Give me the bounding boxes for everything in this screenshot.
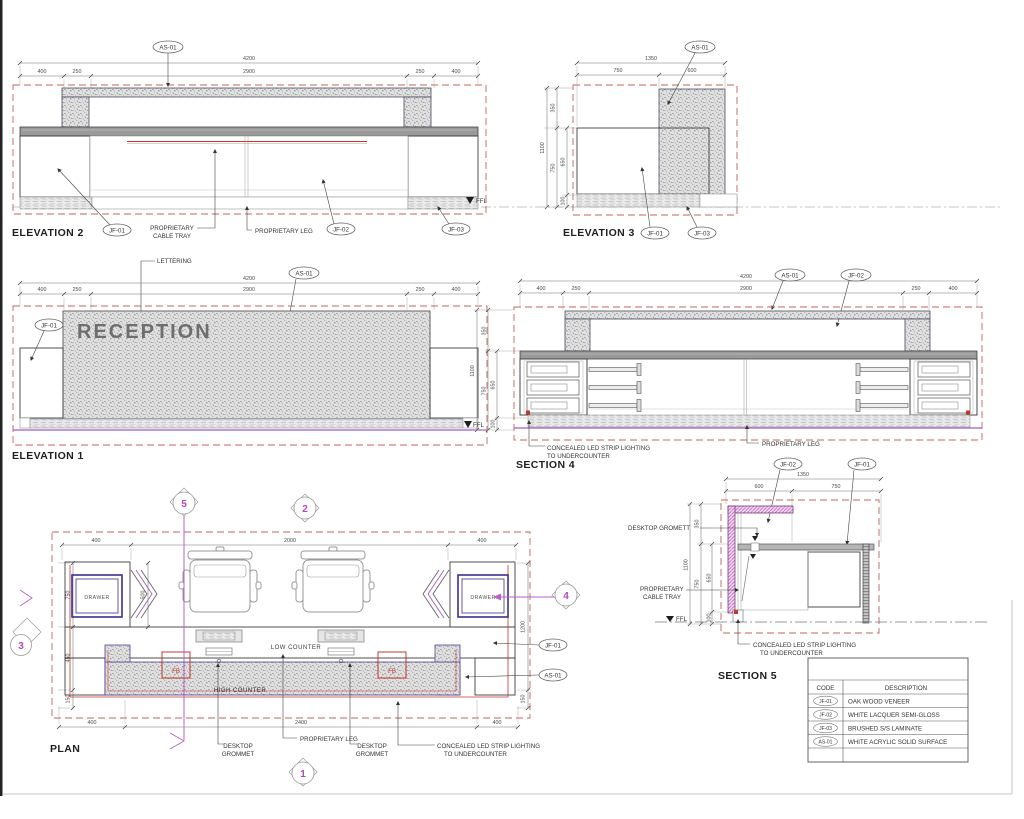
dim-label: 750 (482, 387, 488, 396)
svg-text:CABLE TRAY: CABLE TRAY (643, 594, 681, 601)
callout-jf01: JF-01 (31, 319, 63, 360)
note-led-strip: CONCEALED LED STRIP LIGHTING TO UNDERCOU… (398, 702, 540, 758)
dim-label: 2900 (243, 69, 255, 75)
svg-text:JF-01: JF-01 (545, 643, 561, 650)
material-desc: WHITE LACQUER SEMI-GLOSS (848, 712, 940, 719)
dim-label: 4200 (243, 276, 255, 282)
section-marker-4: 4 (493, 581, 580, 609)
svg-text:CONCEALED LED STRIP LIGHTING: CONCEALED LED STRIP LIGHTING (753, 642, 856, 649)
material-code: AS-01 (819, 740, 833, 746)
section-marker-5: 5 (170, 488, 198, 749)
high-counter-band (105, 662, 460, 695)
section5-dashed-extent (721, 500, 879, 633)
lacquer-panel (90, 136, 408, 197)
plan-view: 400 2000 400 400 2400 400 750 450 150 50… (11, 488, 581, 786)
reception-signage: RECEPTION (77, 321, 212, 343)
section-marker-2: 2 (291, 494, 319, 522)
note-proprietary-leg: PROPRIETARY LEG (747, 426, 820, 448)
svg-text:DESKTOP GROMETT: DESKTOP GROMETT (628, 525, 690, 532)
cable-tray-profile (742, 556, 749, 601)
dim-label: 150 (521, 695, 527, 704)
material-code: JF-03 (819, 726, 832, 732)
countertop (520, 351, 977, 359)
dim-label: 750 (551, 164, 557, 173)
dim-label: 1100 (684, 559, 690, 571)
fb-label: FB (388, 669, 396, 675)
dim-label: 250 (73, 287, 82, 293)
svg-text:AS-01: AS-01 (691, 45, 709, 52)
note-proprietary-leg: PROPRIETARY LEG (247, 207, 313, 235)
note-cable-tray: PROPRIETARY CABLE TRAY (640, 586, 738, 601)
dim-label: 4200 (740, 274, 752, 280)
svg-text:AS-01: AS-01 (544, 673, 562, 680)
led-strip-dot-right (966, 411, 970, 415)
led-strip-dot (734, 610, 738, 614)
dim-label: 650 (491, 381, 497, 390)
dim-label: 100 (561, 197, 567, 206)
wood-panel-left (20, 348, 63, 418)
drawing-sheet: 4200 400 250 2900 250 400 FFL AS-01 (0, 0, 1024, 819)
dim-label: 400 (949, 286, 958, 292)
material-desc: OAK WOOD VENEER (848, 699, 910, 706)
dim-label: 600 (755, 484, 764, 490)
marker-number: 5 (181, 499, 187, 510)
svg-text:JF-02: JF-02 (848, 273, 864, 280)
drawer-label: DRAWER (84, 595, 109, 601)
dim-label: 1200 (521, 621, 527, 633)
material-desc: BRUSHED S/S LAMINATE (848, 726, 922, 733)
callout-as01: AS-01 (153, 41, 183, 86)
marker-number: 1 (300, 769, 306, 780)
svg-text:JF-01: JF-01 (41, 323, 57, 330)
dim-label: 750 (66, 591, 72, 600)
svg-text:JF-03: JF-03 (694, 231, 710, 238)
material-code: JF-01 (819, 699, 832, 705)
drawing-canvas: 4200 400 250 2900 250 400 FFL AS-01 (0, 0, 1024, 819)
svg-text:TO UNDERCOUNTER: TO UNDERCOUNTER (760, 650, 823, 657)
dim-label: 250 (416, 69, 425, 75)
high-counter-back-panel (728, 506, 735, 613)
solid-surface-side (659, 89, 725, 197)
marker-number: 2 (302, 504, 308, 515)
svg-text:PROPRIETARY LEG: PROPRIETARY LEG (762, 441, 820, 448)
grommet-arrow-icon (750, 554, 756, 559)
dim-label: 750 (695, 580, 701, 589)
dim-label: 250 (912, 286, 921, 292)
dim-label: 600 (688, 68, 697, 74)
chair-right (292, 547, 374, 612)
marker-number: 4 (563, 591, 569, 602)
grommet-arrow-icon (752, 536, 758, 541)
note-desktop-gromett: DESKTOP GROMETT (628, 525, 757, 536)
dim-label: 1350 (797, 472, 809, 478)
svg-text:JF-01: JF-01 (109, 228, 125, 235)
section5-view: JF-02 JF-01 1350 600 750 1100 350 750 65… (628, 458, 990, 682)
dim-label: 400 (88, 720, 97, 726)
svg-text:JF-02: JF-02 (333, 227, 349, 234)
dim-label: 750 (614, 68, 623, 74)
dim-label: 4200 (243, 56, 255, 62)
svg-text:PROPRIETARY: PROPRIETARY (640, 586, 684, 593)
dim-label: 250 (416, 287, 425, 293)
section4-view: AS-01 JF-02 4200 400 250 2900 250 400 11… (470, 269, 982, 471)
svg-text:GROMMET: GROMMET (222, 751, 255, 758)
base-kick-left (20, 197, 92, 209)
dim-label: 1100 (540, 142, 546, 154)
dim-label: 650 (707, 574, 713, 583)
wood-block (808, 552, 860, 607)
dim-label: 750 (832, 484, 841, 490)
dim-label: 150 (66, 695, 72, 704)
drawer-cabinet-left (520, 359, 641, 415)
low-counter-label: LOW COUNTER (271, 645, 322, 651)
material-desc: WHITE ACRYLIC SOLID SURFACE (848, 739, 947, 746)
dim-label: 100 (491, 420, 497, 429)
dim-label: 400 (493, 720, 502, 726)
drawer-slide-arrows-right (423, 570, 449, 618)
drawer-box-left: DRAWER (72, 575, 122, 617)
wood-panel-right (408, 136, 478, 197)
dim-label: 250 (73, 69, 82, 75)
dim-label: 2900 (243, 287, 255, 293)
dim-label: 400 (92, 538, 101, 544)
fb-label: FB (172, 669, 180, 675)
dim-label: 2900 (740, 286, 752, 292)
svg-text:JF-01: JF-01 (647, 231, 663, 238)
svg-text:CONCEALED LED STRIP LIGHTING: CONCEALED LED STRIP LIGHTING (437, 743, 540, 750)
dim-label: 2000 (284, 538, 296, 544)
svg-text:JF-01: JF-01 (854, 462, 870, 469)
callout-as01: AS-01 (466, 669, 567, 681)
svg-text:JF-03: JF-03 (448, 227, 464, 234)
callout-jf01: JF-01 (494, 639, 567, 651)
drawer-label: DRAWER (470, 595, 495, 601)
view-title: PLAN (50, 743, 80, 755)
solid-surface-slab (565, 311, 930, 319)
dim-label: 1350 (645, 56, 657, 62)
svg-text:CABLE TRAY: CABLE TRAY (153, 233, 191, 240)
drawer-runners (856, 364, 908, 412)
dim-label: 400 (452, 287, 461, 293)
svg-text:PROPRIETARY LEG: PROPRIETARY LEG (255, 228, 313, 235)
high-counter-label: HIGH COUNTER (214, 688, 267, 694)
grommet-cutout (751, 543, 759, 551)
dim-label: 400 (38, 69, 47, 75)
callout-jf01: JF-01 (847, 458, 876, 544)
table-header-description: DESCRIPTION (885, 685, 927, 692)
callout-as01: AS-01 (772, 269, 805, 309)
svg-text:AS-01: AS-01 (781, 273, 799, 280)
countertop (20, 127, 478, 136)
material-code: JF-02 (819, 713, 832, 719)
chair-left (179, 547, 261, 612)
high-counter-top (728, 506, 793, 513)
svg-text:AS-01: AS-01 (295, 271, 313, 278)
svg-text:AS-01: AS-01 (159, 45, 177, 52)
counter-return-left (65, 658, 105, 695)
table-header-code: CODE (817, 685, 835, 692)
dim-label: 400 (537, 286, 546, 292)
svg-text:DESKTOP: DESKTOP (223, 743, 252, 750)
view-title: ELEVATION 1 (12, 450, 84, 462)
dim-label: 350 (551, 104, 557, 113)
svg-text:DESKTOP: DESKTOP (357, 743, 386, 750)
note-lettering: LETTERING (141, 258, 192, 318)
ffl-label: FFL (476, 198, 488, 205)
svg-text:CONCEALED LED STRIP LIGHTING: CONCEALED LED STRIP LIGHTING (547, 445, 650, 452)
section-marker-3: 3 (11, 590, 42, 656)
led-strip-dot-left (526, 411, 530, 415)
elevation1-view: LETTERING AS-01 4200 400 250 2900 250 40… (12, 258, 487, 462)
dim-label: 1100 (470, 365, 476, 377)
dim-label: 350 (482, 327, 488, 336)
base-kick (30, 419, 463, 428)
view-title: ELEVATION 3 (563, 227, 635, 239)
solid-surface-slab (62, 88, 431, 97)
elevation2-view: 4200 400 250 2900 250 400 FFL AS-01 (12, 41, 488, 240)
dim-label: 250 (572, 286, 581, 292)
drawer-runners (589, 364, 641, 412)
drawer-cabinet-right (856, 359, 977, 415)
svg-text:JF-02: JF-02 (780, 462, 796, 469)
svg-text:GROMMET: GROMMET (356, 751, 389, 758)
section-marker-1: 1 (289, 758, 317, 786)
svg-text:LETTERING: LETTERING (157, 258, 192, 265)
wood-panel-left (20, 136, 90, 197)
svg-text:TO UNDERCOUNTER: TO UNDERCOUNTER (444, 751, 507, 758)
materials-table: CODE DESCRIPTION JF-01 OAK WOOD VENEER J… (808, 658, 968, 762)
dim-label: 400 (38, 287, 47, 293)
ffl-triangle-icon (666, 616, 674, 622)
wood-panel-right (430, 348, 478, 418)
dim-label: 2400 (295, 720, 307, 726)
svg-text:PROPRIETARY LEG: PROPRIETARY LEG (300, 736, 358, 743)
view-title: SECTION 4 (516, 459, 575, 471)
base-kick (528, 415, 970, 427)
callout-jf03: JF-03 (438, 207, 470, 235)
view-title: SECTION 5 (718, 670, 777, 682)
ffl-label: FFL (676, 616, 688, 623)
callout-jf03: JF-03 (687, 207, 716, 239)
base-kick (577, 194, 700, 207)
note-led-strip: CONCEALED LED STRIP LIGHTING TO UNDERCOU… (738, 620, 856, 657)
elevation3-view: 1350 750 600 1100 350 750 650 100 AS-01 … (540, 41, 737, 239)
dim-label: 400 (452, 69, 461, 75)
dim-label: 650 (561, 158, 567, 167)
dim-label: 400 (478, 538, 487, 544)
svg-text:PROPRIETARY: PROPRIETARY (150, 225, 194, 232)
marker-number: 3 (18, 641, 24, 652)
view-title: ELEVATION 2 (12, 227, 84, 239)
wood-face-strip (863, 544, 869, 623)
dim-label: 350 (695, 520, 701, 529)
dim-label: 100 (707, 614, 713, 623)
